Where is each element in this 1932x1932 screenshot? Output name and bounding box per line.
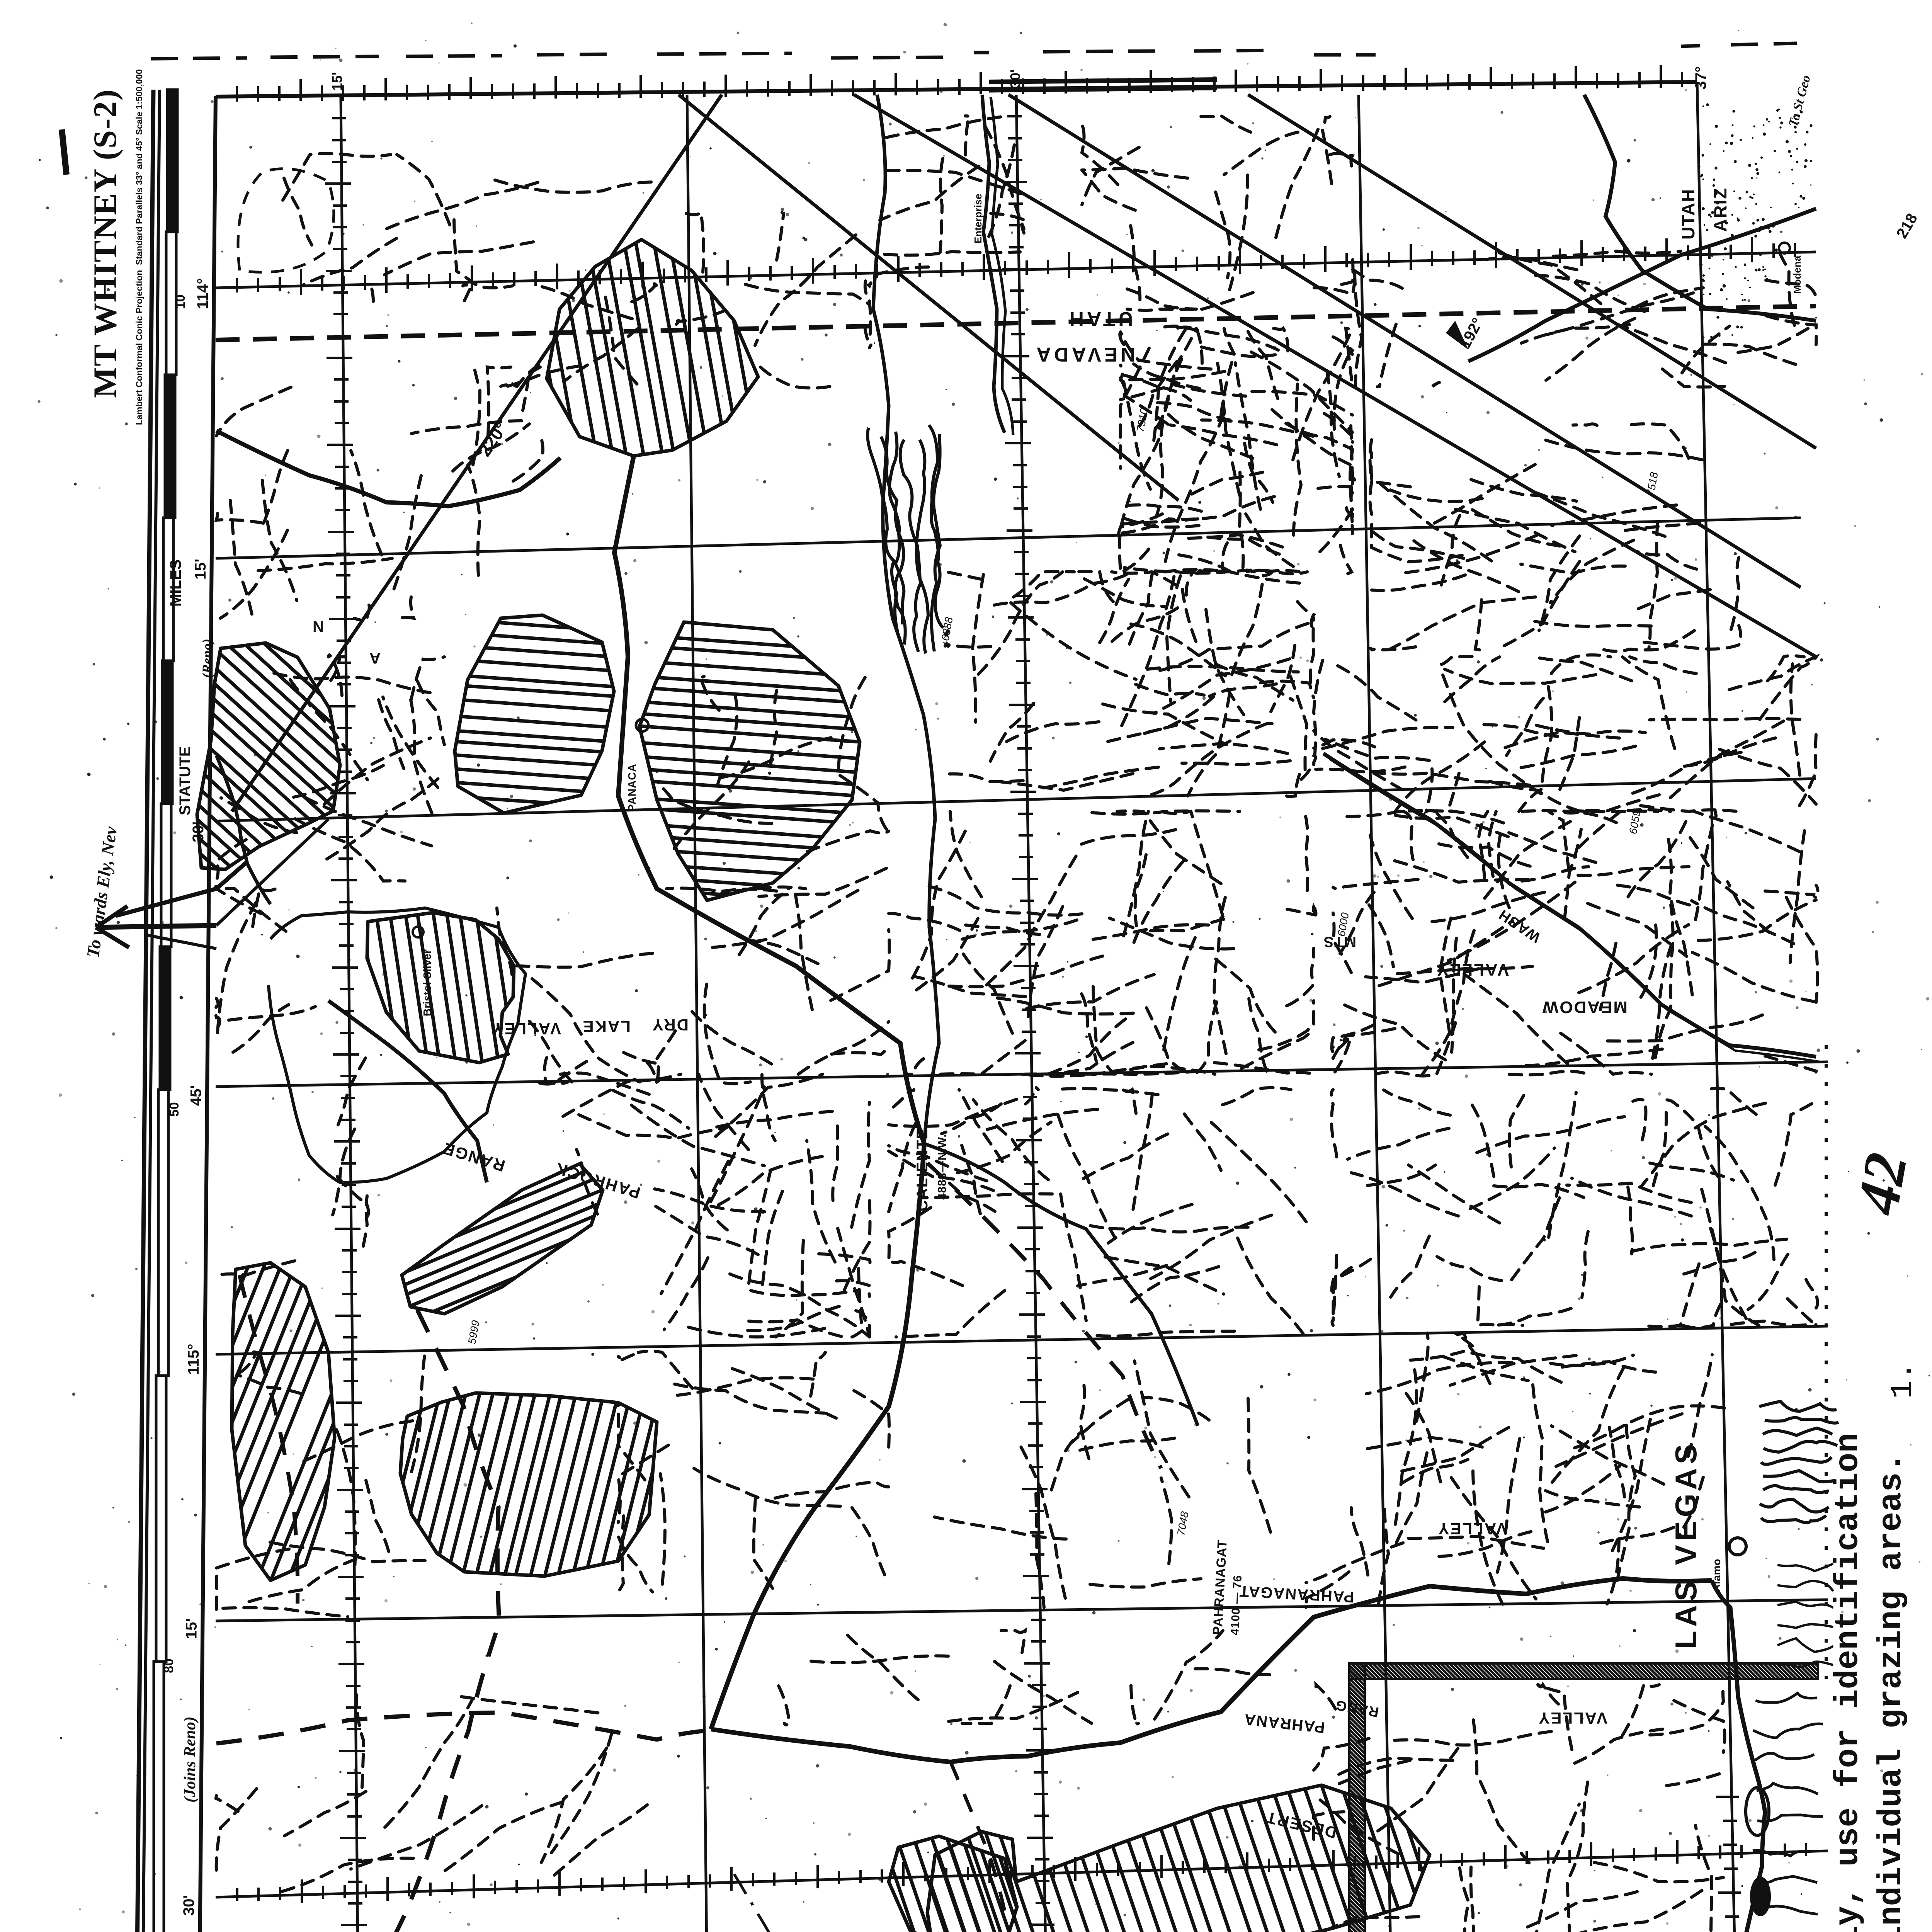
svg-text:Modena: Modena bbox=[1791, 255, 1803, 294]
svg-text:42: 42 bbox=[1844, 1148, 1920, 1219]
svg-text:37°: 37° bbox=[1692, 66, 1709, 90]
svg-text:15': 15' bbox=[183, 1618, 200, 1639]
svg-text:50: 50 bbox=[167, 1102, 182, 1117]
svg-text:UTAH: UTAH bbox=[1678, 189, 1698, 240]
svg-text:80: 80 bbox=[162, 1658, 176, 1673]
svg-text:30': 30' bbox=[1007, 69, 1023, 88]
svg-text:N: N bbox=[313, 618, 324, 635]
svg-text:Bristol Silver: Bristol Silver bbox=[421, 949, 433, 1016]
svg-text:4883—N.W.: 4883—N.W. bbox=[936, 1134, 949, 1200]
svg-text:ther than accurate outline of: ther than accurate outline of individual… bbox=[1873, 1453, 1910, 1932]
svg-text:LAKE: LAKE bbox=[582, 1017, 631, 1036]
svg-text:VALLEY: VALLEY bbox=[1436, 960, 1509, 979]
svg-text:VALLEY: VALLEY bbox=[1437, 1520, 1507, 1538]
svg-text:1.: 1. bbox=[1886, 1362, 1921, 1399]
svg-text:15': 15' bbox=[329, 72, 345, 91]
svg-text:114°: 114° bbox=[194, 278, 211, 309]
svg-text:Enterprise: Enterprise bbox=[972, 194, 984, 243]
svg-text:A: A bbox=[369, 650, 381, 667]
svg-text:as outlined are approximate on: as outlined are approximate only, use fo… bbox=[1830, 1433, 1867, 1932]
svg-text:30': 30' bbox=[180, 1895, 197, 1916]
svg-text:UTAH: UTAH bbox=[1066, 308, 1133, 330]
svg-text:MILES: MILES bbox=[167, 560, 184, 607]
svg-text:(Joins Reno): (Joins Reno) bbox=[181, 1716, 199, 1803]
svg-text:DRY: DRY bbox=[651, 1016, 689, 1034]
svg-text:STATUTE: STATUTE bbox=[177, 747, 194, 816]
svg-text:45': 45' bbox=[187, 1085, 204, 1106]
svg-text:15': 15' bbox=[192, 559, 209, 580]
svg-text:Alamo: Alamo bbox=[1711, 1559, 1723, 1592]
svg-text:ARIZ: ARIZ bbox=[1710, 187, 1730, 232]
svg-text:MT WHITNEY (S-2): MT WHITNEY (S-2) bbox=[87, 89, 123, 398]
svg-text:VALLEY: VALLEY bbox=[491, 1020, 561, 1038]
svg-text:115°: 115° bbox=[185, 1344, 202, 1375]
svg-text:VALLEY: VALLEY bbox=[1537, 1709, 1607, 1727]
svg-text:PANACA: PANACA bbox=[626, 764, 638, 811]
svg-text:Lambert Conformal Conic Projec: Lambert Conformal Conic Projection Stand… bbox=[134, 69, 144, 425]
svg-text:NEVADA: NEVADA bbox=[1033, 343, 1135, 366]
svg-text:LAS VEGAS: LAS VEGAS bbox=[1669, 1440, 1703, 1649]
svg-text:10: 10 bbox=[173, 294, 188, 309]
svg-text:MEADOW: MEADOW bbox=[1541, 998, 1628, 1017]
svg-text:CALIENTE: CALIENTE bbox=[914, 1128, 931, 1211]
